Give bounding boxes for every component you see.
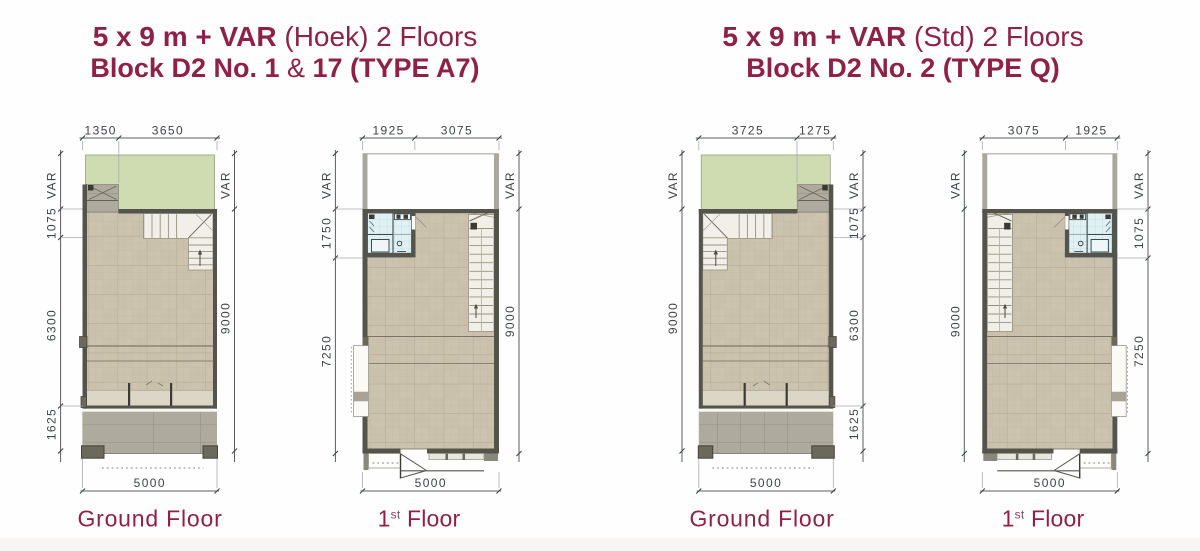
svg-text:5000: 5000	[750, 476, 782, 490]
svg-text:3075: 3075	[441, 124, 473, 138]
svg-text:1st Floor: 1st Floor	[1002, 506, 1085, 532]
svg-text:VAR: VAR	[1132, 171, 1146, 199]
svg-text:1st Floor: 1st Floor	[378, 506, 461, 532]
svg-text:1750: 1750	[319, 217, 333, 249]
svg-text:1075: 1075	[45, 207, 59, 239]
svg-text:VAR: VAR	[503, 171, 517, 199]
svg-text:5 x 9 m + VAR (Std) 2 Floors: 5 x 9 m + VAR (Std) 2 Floors	[722, 21, 1083, 52]
svg-text:1350: 1350	[85, 124, 117, 138]
svg-text:VAR: VAR	[847, 171, 861, 199]
svg-text:5000: 5000	[134, 476, 166, 490]
svg-text:5000: 5000	[1034, 476, 1066, 490]
svg-text:VAR: VAR	[948, 171, 962, 199]
svg-text:9000: 9000	[503, 305, 517, 337]
svg-text:5 x 9 m + VAR (Hoek) 2 Floors: 5 x 9 m + VAR (Hoek) 2 Floors	[93, 21, 478, 52]
svg-text:1275: 1275	[799, 124, 831, 138]
svg-text:1075: 1075	[1132, 217, 1146, 249]
svg-text:VAR: VAR	[45, 171, 59, 199]
svg-text:9000: 9000	[219, 302, 233, 334]
svg-text:VAR: VAR	[666, 171, 680, 199]
svg-text:9000: 9000	[666, 302, 680, 334]
svg-text:1075: 1075	[847, 207, 861, 239]
svg-text:VAR: VAR	[319, 171, 333, 199]
svg-text:7250: 7250	[1132, 335, 1146, 367]
svg-text:3650: 3650	[152, 124, 184, 138]
svg-text:6300: 6300	[45, 309, 59, 341]
svg-text:7250: 7250	[319, 335, 333, 367]
svg-text:Ground Floor: Ground Floor	[77, 506, 222, 532]
svg-text:1625: 1625	[847, 408, 861, 440]
svg-text:Block D2 No. 2 (TYPE Q): Block D2 No. 2 (TYPE Q)	[746, 53, 1060, 83]
svg-text:1925: 1925	[1075, 124, 1107, 138]
svg-text:Ground Floor: Ground Floor	[689, 506, 834, 532]
svg-text:9000: 9000	[948, 305, 962, 337]
svg-text:5000: 5000	[415, 476, 447, 490]
svg-text:6300: 6300	[847, 309, 861, 341]
svg-text:3725: 3725	[732, 124, 764, 138]
svg-text:3075: 3075	[1008, 124, 1040, 138]
svg-text:1625: 1625	[45, 408, 59, 440]
svg-text:VAR: VAR	[219, 171, 233, 199]
svg-text:Block D2 No. 1 & 17 (TYPE A7): Block D2 No. 1 & 17 (TYPE A7)	[90, 53, 479, 83]
svg-text:1925: 1925	[372, 124, 404, 138]
